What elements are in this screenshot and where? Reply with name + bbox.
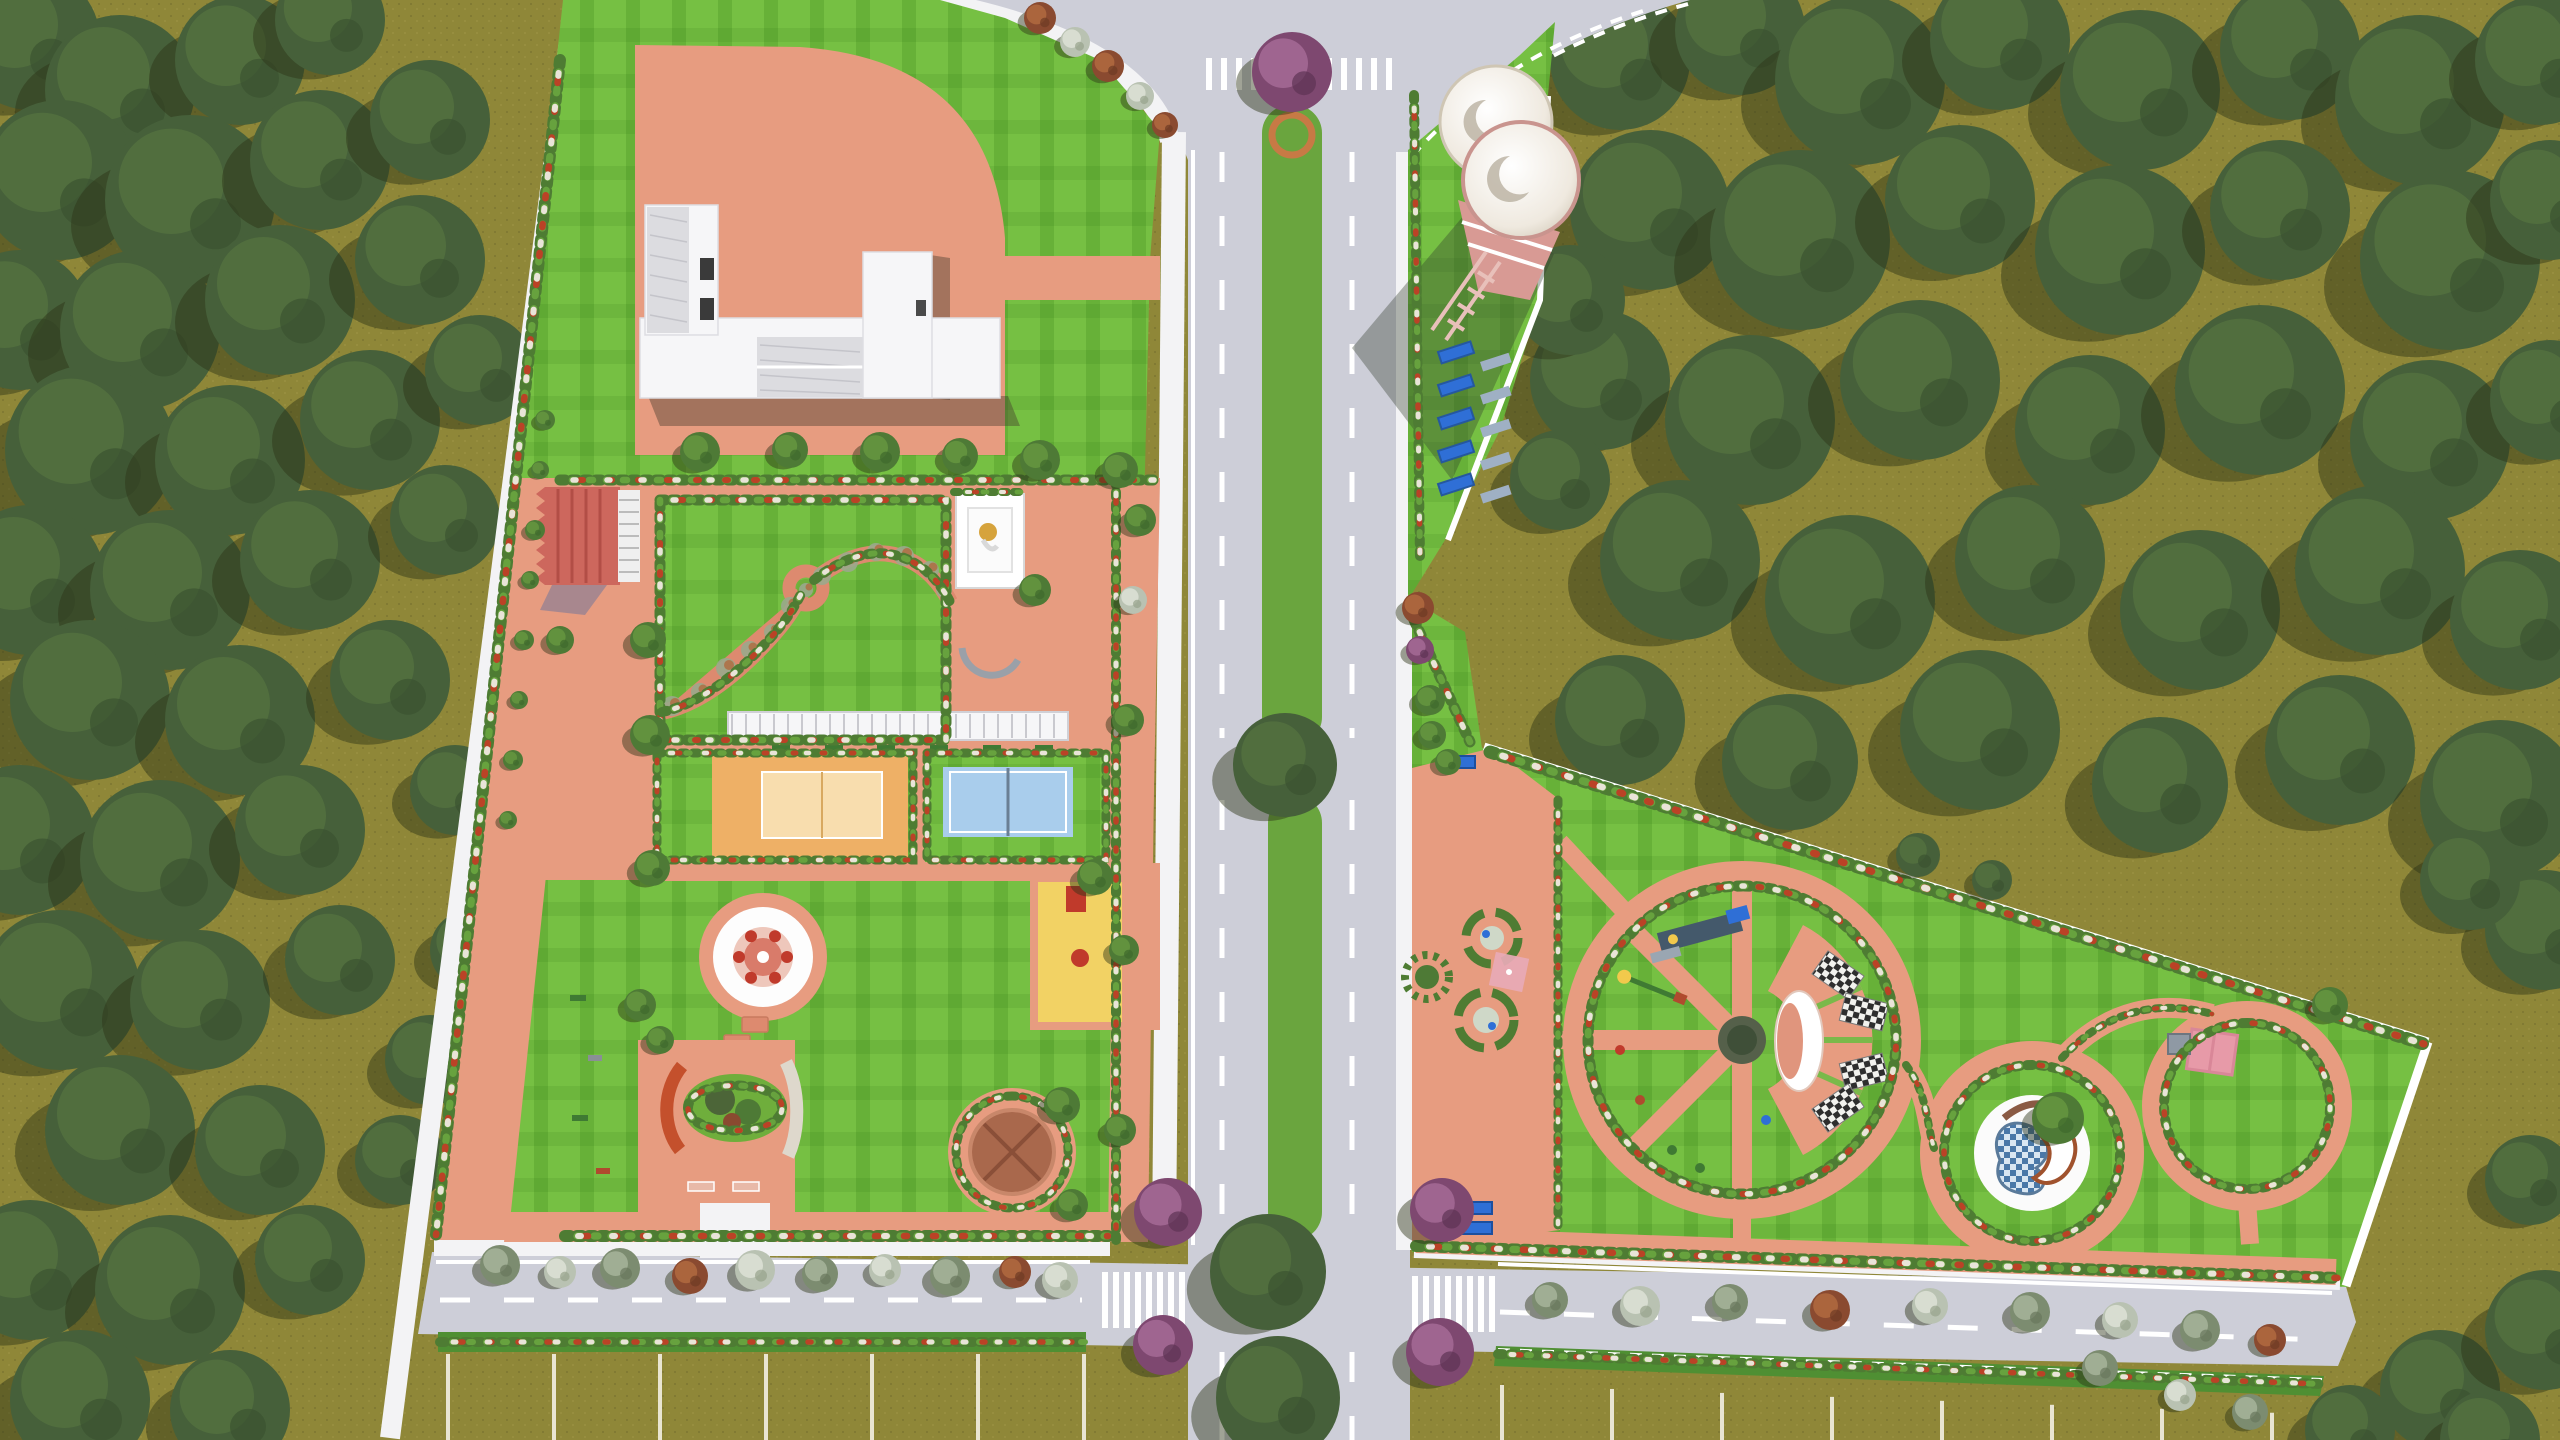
small-play-item — [1761, 1115, 1771, 1125]
circle-shape — [524, 640, 530, 646]
circle-shape — [340, 959, 373, 992]
circle-shape — [950, 1276, 962, 1288]
circle-shape — [1165, 125, 1173, 133]
circle-shape — [1062, 1105, 1073, 1116]
circle-shape — [1168, 1211, 1188, 1231]
circle-shape — [2030, 559, 2075, 604]
circle-shape — [1015, 1272, 1025, 1282]
small-play-item — [1635, 1095, 1645, 1105]
circle-shape — [1292, 71, 1316, 95]
circle-shape — [519, 700, 524, 705]
circle-shape — [2530, 1179, 2557, 1206]
plaza-road-connector — [1000, 256, 1160, 300]
circle-shape — [170, 1289, 215, 1334]
wheel-garden — [1574, 872, 1910, 1208]
circle-shape — [280, 299, 325, 344]
zebra-bar — [1206, 58, 1212, 90]
circle-shape — [1750, 418, 1801, 469]
garden-shrub-flower — [806, 584, 813, 591]
circle-shape — [535, 530, 541, 536]
circle-shape — [240, 719, 285, 764]
circle-shape — [1095, 877, 1106, 888]
circle-shape — [1133, 600, 1141, 608]
circle-shape — [1035, 590, 1045, 600]
circle-shape — [2340, 749, 2385, 794]
fitness-item — [596, 1168, 610, 1174]
left-tower-roof — [647, 207, 689, 333]
circle-shape — [820, 1274, 831, 1285]
left-parcel-east-sidewalk — [1164, 132, 1174, 1240]
circle-shape — [2380, 568, 2431, 619]
circle-shape — [560, 640, 568, 648]
circle-shape — [755, 1270, 767, 1282]
circle-shape — [1285, 764, 1316, 795]
small-play-item — [1615, 1045, 1625, 1055]
small-play-item — [1667, 1145, 1677, 1155]
circle-shape — [1960, 199, 2005, 244]
circle-shape — [1128, 720, 1138, 730]
circle-shape — [60, 988, 108, 1036]
circle-shape — [1730, 1302, 1741, 1313]
circle-shape — [1850, 598, 1901, 649]
zebra-bar — [1356, 58, 1362, 90]
circle-shape — [690, 1276, 701, 1287]
circle-shape — [1930, 1306, 1941, 1317]
circle-shape — [620, 1268, 632, 1280]
circle-shape — [330, 19, 363, 52]
circle-shape — [390, 679, 426, 715]
circle-shape — [1060, 1280, 1071, 1291]
circle-shape — [650, 735, 662, 747]
circle-shape — [1430, 700, 1439, 709]
fountain-petal — [733, 951, 745, 963]
circle-shape — [1120, 1130, 1130, 1140]
zebra-bar — [1135, 1272, 1141, 1328]
tank-2 — [1463, 122, 1579, 238]
circle-shape — [1980, 728, 2028, 776]
circle-shape — [1800, 238, 1854, 292]
circle-shape — [420, 259, 459, 298]
circle-shape — [80, 1399, 122, 1440]
circle-shape — [1268, 1271, 1303, 1306]
circle-shape — [480, 369, 513, 402]
circle-shape — [120, 1129, 165, 1174]
circle-shape — [1278, 1397, 1315, 1434]
sw-bench-1 — [688, 1182, 714, 1191]
circle-shape — [2330, 1005, 2341, 1016]
hedge-border — [1414, 95, 1420, 560]
zebra-bar — [1412, 1276, 1418, 1332]
fountain-petal — [745, 930, 757, 942]
fountain-petal — [769, 930, 781, 942]
circle-shape — [1120, 470, 1131, 481]
circle-shape — [1140, 96, 1148, 104]
circle-shape — [1640, 1306, 1652, 1318]
fountain-jet — [757, 951, 769, 963]
circle-shape — [640, 1005, 650, 1015]
circle-shape — [2450, 258, 2504, 312]
yellow-court-spot — [1071, 949, 1089, 967]
circle-shape — [1830, 1310, 1842, 1322]
pavilion-roof — [545, 487, 620, 585]
circle-shape — [1040, 460, 1052, 472]
circle-shape — [1920, 378, 1968, 426]
sw-bench-2 — [733, 1182, 759, 1191]
circle-shape — [2250, 1412, 2261, 1423]
circle-shape — [2260, 388, 2311, 439]
circle-shape — [500, 1265, 512, 1277]
median-strip — [1262, 105, 1322, 745]
circle-shape — [310, 559, 352, 601]
circle-shape — [2160, 784, 2201, 825]
circle-shape — [1432, 735, 1440, 743]
circle-shape — [2100, 1368, 2111, 1379]
circle-shape — [2280, 209, 2322, 251]
fountain-petal — [745, 972, 757, 984]
circle-shape — [1163, 1344, 1181, 1362]
circle-shape — [260, 1149, 299, 1188]
circle-shape — [1440, 1351, 1460, 1371]
circle-shape — [1075, 42, 1084, 51]
circle-shape — [652, 868, 663, 879]
circle-shape — [1790, 761, 1831, 802]
circle-shape — [230, 459, 275, 504]
shade-canopy — [1489, 952, 1529, 992]
circle-shape — [1600, 379, 1642, 421]
circle-shape — [1448, 762, 1456, 770]
circle-shape — [160, 858, 208, 906]
aerial-render-stage — [0, 0, 2560, 1440]
fountain-petal — [781, 951, 793, 963]
circle-shape — [2270, 1340, 2280, 1350]
circle-shape — [1918, 855, 1931, 868]
building-shadow — [648, 396, 1020, 426]
circle-shape — [1418, 608, 1428, 618]
circle-shape — [2120, 248, 2171, 299]
zebra-bar — [1371, 58, 1377, 90]
circle-shape — [700, 452, 712, 464]
circle-shape — [30, 1269, 72, 1311]
circle-shape — [1560, 479, 1590, 509]
circle-shape — [1124, 950, 1133, 959]
circle-shape — [960, 456, 971, 467]
circle-shape — [1108, 66, 1118, 76]
circle-shape — [2180, 1395, 2190, 1405]
zebra-bar — [1341, 58, 1347, 90]
statue-monument — [956, 494, 1024, 588]
stepping-stone — [742, 1017, 768, 1032]
site-plan-svg — [0, 0, 2560, 1440]
zebra-bar — [1179, 1272, 1185, 1328]
circle-shape — [300, 829, 339, 868]
circle-shape — [513, 760, 519, 766]
zebra-bar — [1489, 1276, 1495, 1332]
circle-shape — [2030, 1312, 2042, 1324]
circle-shape — [1860, 78, 1911, 129]
circle-shape — [1550, 1300, 1561, 1311]
east-entry-plaza — [1412, 748, 1560, 1248]
statue-gold — [979, 523, 997, 541]
circle-shape — [2500, 798, 2548, 846]
circle-shape — [430, 119, 466, 155]
circle-shape — [2140, 88, 2188, 136]
circle-shape — [170, 588, 218, 636]
circle-shape — [880, 452, 892, 464]
zebra-bar — [1113, 1272, 1119, 1328]
zebra-bar — [1478, 1276, 1484, 1332]
circle-shape — [1040, 18, 1050, 28]
fitness-item — [570, 995, 586, 1001]
zebra-bar — [1467, 1276, 1473, 1332]
wheel-hub-core — [1727, 1025, 1757, 1055]
yellow-court — [1030, 875, 1160, 1030]
median-strip — [1268, 795, 1322, 1240]
circle-shape — [545, 420, 551, 426]
circle-shape — [1140, 520, 1150, 530]
building-right-wing — [863, 252, 932, 398]
entry-flower-tree — [1415, 965, 1439, 989]
circle-shape — [2120, 1320, 2131, 1331]
circle-shape — [2200, 1330, 2212, 1342]
circle-shape — [648, 640, 659, 651]
circle-shape — [660, 1040, 668, 1048]
connector-loop-south — [2247, 1201, 2250, 1244]
circle-shape — [508, 820, 513, 825]
small-play-item — [1695, 1163, 1705, 1173]
circle-shape — [2090, 429, 2135, 474]
circle-shape — [885, 1270, 895, 1280]
circle-shape — [2470, 879, 2500, 909]
circle-shape — [2000, 39, 2042, 81]
circle-shape — [2200, 608, 2248, 656]
circle-shape — [2430, 438, 2478, 486]
circle-shape — [370, 419, 412, 461]
tower-window-2 — [700, 298, 714, 320]
circle-shape — [1680, 558, 1728, 606]
circle-shape — [1442, 1209, 1461, 1228]
circle-shape — [1992, 880, 2004, 892]
circle-shape — [320, 159, 362, 201]
right-wing-door — [916, 300, 926, 316]
circle-shape — [1420, 650, 1428, 658]
circle-shape — [560, 1272, 570, 1282]
zebra-bar — [1124, 1272, 1130, 1328]
circle-shape — [790, 450, 801, 461]
zebra-bar — [1102, 1272, 1108, 1328]
circle-shape — [540, 470, 545, 475]
circle-shape — [2058, 1117, 2074, 1133]
zebra-bar — [1221, 58, 1227, 90]
circle-shape — [1620, 719, 1659, 758]
fountain-plaza — [699, 893, 827, 1021]
circle-shape — [90, 698, 138, 746]
fountain-petal — [769, 972, 781, 984]
crescent-stage-pink — [1777, 1003, 1803, 1079]
zebra-bar — [1386, 58, 1392, 90]
circle-shape — [1570, 299, 1603, 332]
tower-window-1 — [700, 258, 714, 280]
circle-shape — [530, 580, 535, 585]
circle-shape — [310, 1259, 343, 1292]
fitness-item — [572, 1115, 588, 1121]
circle-shape — [200, 999, 242, 1041]
fitness-item — [588, 1055, 602, 1061]
circle-shape — [445, 519, 478, 552]
circle-shape — [1072, 1205, 1082, 1215]
